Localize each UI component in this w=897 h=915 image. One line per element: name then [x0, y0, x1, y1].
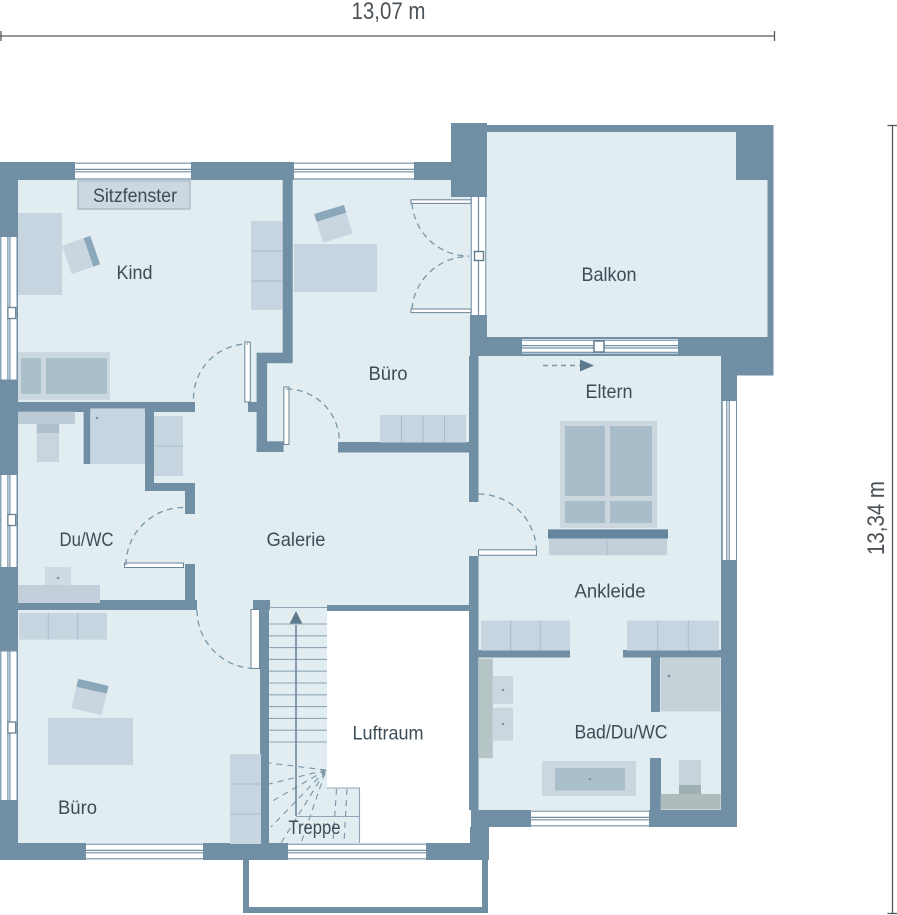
svg-text:13,34 m: 13,34 m	[863, 481, 890, 555]
svg-text:Bad/Du/WC: Bad/Du/WC	[575, 722, 668, 744]
svg-text:13,07 m: 13,07 m	[352, 0, 426, 25]
svg-text:Treppe: Treppe	[289, 817, 341, 839]
svg-text:Kind: Kind	[117, 262, 153, 284]
svg-text:Ankleide: Ankleide	[575, 581, 646, 603]
svg-text:Balkon: Balkon	[582, 264, 637, 286]
svg-text:Sitzfenster: Sitzfenster	[93, 185, 177, 207]
svg-text:Galerie: Galerie	[267, 529, 326, 551]
svg-text:Büro: Büro	[369, 363, 408, 385]
svg-text:Luftraum: Luftraum	[353, 723, 424, 745]
svg-text:Eltern: Eltern	[586, 381, 633, 403]
svg-text:Büro: Büro	[58, 797, 97, 819]
svg-text:Du/WC: Du/WC	[60, 529, 114, 551]
